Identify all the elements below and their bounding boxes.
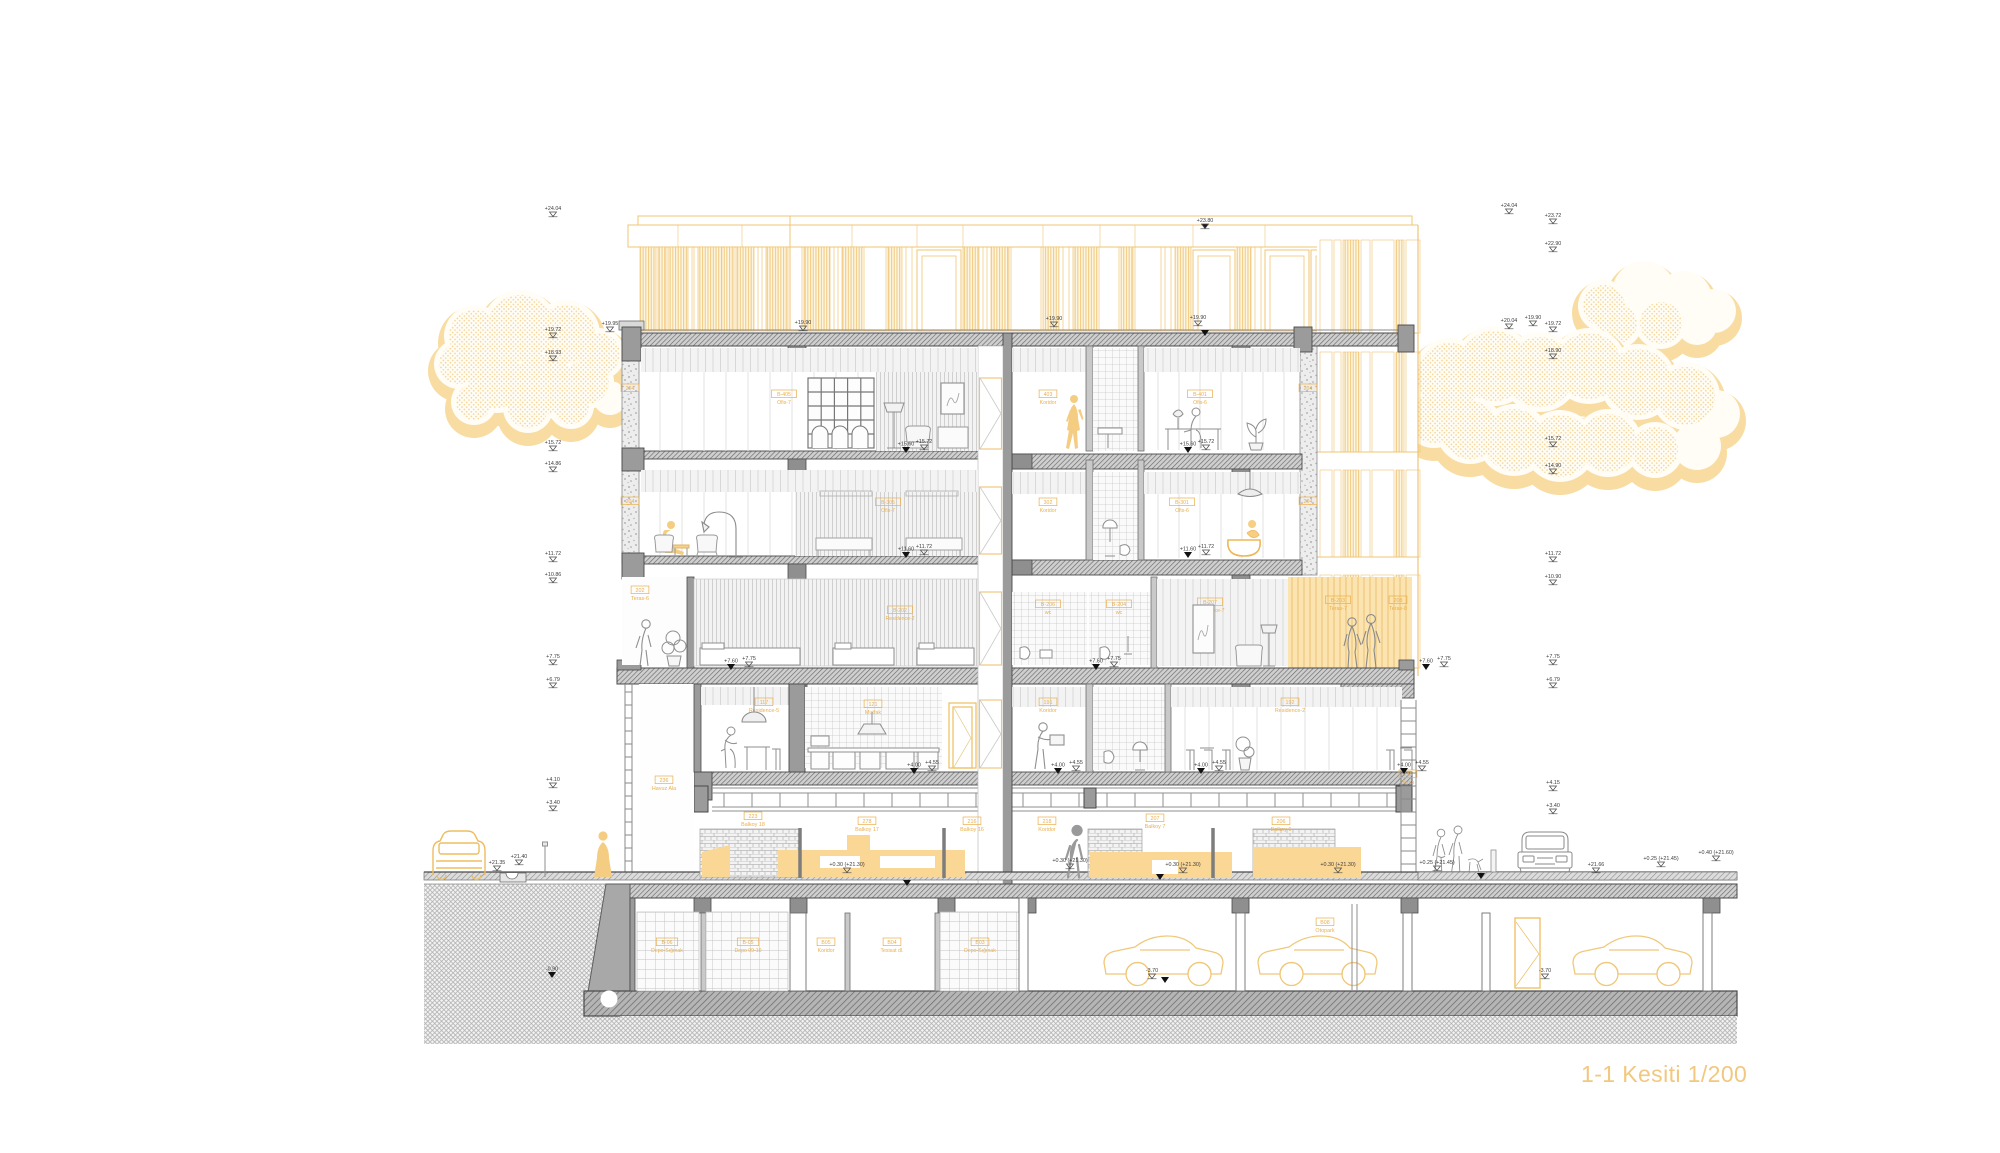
svg-text:207: 207 [1151,816,1160,822]
svg-text:+23.72: +23.72 [1545,213,1562,219]
svg-text:302: 302 [1044,500,1053,506]
svg-text:+24.04: +24.04 [545,206,562,212]
svg-text:wc: wc [1115,610,1123,616]
svg-text:+6.79: +6.79 [546,677,560,683]
svg-text:+7.60: +7.60 [1419,659,1433,665]
svg-text:Depo-Sığınak: Depo-Sığınak [651,948,683,954]
svg-text:Koridor: Koridor [818,948,835,954]
svg-text:Teras-8: Teras-8 [1389,606,1407,612]
svg-text:+15.60: +15.60 [1180,442,1197,448]
svg-text:+0.40 (+21.60): +0.40 (+21.60) [1698,850,1734,856]
svg-text:Residence-2: Residence-2 [885,616,914,622]
svg-text:Residence-2: Residence-2 [1275,708,1305,714]
svg-text:Balkoy 18: Balkoy 18 [741,822,765,828]
svg-text:+11.72: +11.72 [545,551,561,557]
svg-text:Depo-Sığınak: Depo-Sığınak [964,948,996,954]
svg-text:+0.30 (+21.30): +0.30 (+21.30) [1052,858,1088,864]
svg-text:+19.90: +19.90 [1190,315,1207,321]
svg-text:+22.90: +22.90 [1545,241,1562,247]
svg-text:+0.30 (+21.30): +0.30 (+21.30) [829,862,865,868]
svg-text:B-202: B-202 [893,608,907,614]
svg-text:+23.80: +23.80 [1197,218,1214,224]
svg-text:+7.60: +7.60 [1089,659,1103,665]
svg-text:206: 206 [1277,819,1286,825]
svg-text:+19.90: +19.90 [1046,316,1063,322]
svg-text:Ofis-6: Ofis-6 [1175,508,1189,514]
svg-text:223: 223 [749,814,758,820]
svg-text:+4.55: +4.55 [1069,760,1083,766]
svg-text:+4.00: +4.00 [907,763,921,769]
svg-text:B-06: B-06 [662,940,673,946]
svg-text:+7.60: +7.60 [724,659,738,665]
svg-text:B-206: B-206 [1041,602,1055,608]
svg-text:204: 204 [626,386,635,392]
svg-text:216: 216 [968,819,977,825]
svg-text:+19.72: +19.72 [545,327,562,333]
svg-text:191: 191 [1044,700,1053,706]
svg-text:+11.72: +11.72 [916,544,932,550]
svg-text:Koridor: Koridor [1040,508,1057,514]
svg-text:+15.72: +15.72 [545,440,562,446]
svg-text:-3.70: -3.70 [1539,968,1551,974]
svg-text:+0.30 (+21.30): +0.30 (+21.30) [1320,862,1356,868]
svg-text:117: 117 [760,700,769,706]
svg-text:204: 204 [626,499,635,505]
svg-text:+15.72: +15.72 [1198,439,1215,445]
svg-text:wc: wc [1044,610,1052,616]
svg-text:+24.04: +24.04 [1501,203,1518,209]
svg-text:+19.90: +19.90 [1525,315,1542,321]
svg-text:+4.00: +4.00 [1194,763,1208,769]
svg-text:+7.75: +7.75 [742,656,756,662]
svg-text:Teras: Teras [1402,780,1415,786]
svg-text:+10.90: +10.90 [1545,574,1562,580]
svg-text:B-301: B-301 [1175,500,1189,506]
svg-text:+7.75: +7.75 [1107,656,1121,662]
svg-text:278: 278 [863,819,872,825]
svg-text:B-405: B-405 [777,392,791,398]
svg-text:+7.75: +7.75 [1546,654,1560,660]
svg-text:+15.72: +15.72 [1545,436,1562,442]
svg-text:+7.75: +7.75 [1437,656,1451,662]
svg-text:1-1 Kesiti 1/200: 1-1 Kesiti 1/200 [1581,1061,1747,1087]
svg-text:+0.25 (+21.45): +0.25 (+21.45) [1643,856,1679,862]
svg-text:+11.72: +11.72 [1545,551,1561,557]
svg-text:B04: B04 [887,940,896,946]
svg-text:192: 192 [1286,700,1295,706]
svg-text:+4.55: +4.55 [1415,760,1429,766]
svg-text:202: 202 [636,588,645,594]
svg-text:+4.00: +4.00 [1397,763,1411,769]
svg-text:+19.95: +19.95 [602,321,619,327]
svg-text:236: 236 [660,778,669,784]
svg-text:204: 204 [1304,386,1313,392]
svg-text:Balkoy 16: Balkoy 16 [960,827,984,833]
svg-text:+20.04: +20.04 [1501,318,1518,324]
svg-text:+19.72: +19.72 [1545,321,1562,327]
svg-text:+4.10: +4.10 [546,777,560,783]
svg-text:235: 235 [1404,772,1413,778]
svg-text:218: 218 [1043,819,1052,825]
svg-text:+0.30 (+21.30): +0.30 (+21.30) [1165,862,1201,868]
svg-text:B-05: B-05 [743,940,754,946]
svg-text:+4.55: +4.55 [925,760,939,766]
svg-text:+0.25 (+21.45): +0.25 (+21.45) [1419,860,1455,866]
svg-text:Ofis-6: Ofis-6 [1193,400,1207,406]
svg-text:+19.90: +19.90 [795,320,812,326]
svg-text:Depo 09-10: Depo 09-10 [734,948,761,954]
svg-text:+10.86: +10.86 [545,572,562,578]
svg-text:B-204: B-204 [1112,602,1126,608]
svg-text:+4.15: +4.15 [1546,780,1560,786]
svg-text:B08: B08 [1320,920,1330,926]
svg-text:403: 403 [1044,392,1053,398]
svg-text:+7.75: +7.75 [546,654,560,660]
svg-text:208: 208 [1394,598,1403,604]
svg-text:+11.60: +11.60 [1180,547,1196,553]
svg-text:Koridor: Koridor [1039,708,1057,714]
svg-text:-3.70: -3.70 [1146,968,1158,974]
svg-text:B03: B03 [975,940,984,946]
svg-text:Havuz Ala: Havuz Ala [652,786,676,792]
svg-text:+11.72: +11.72 [1198,544,1214,550]
svg-text:+15.72: +15.72 [916,439,933,445]
svg-text:+4.00: +4.00 [1051,763,1065,769]
svg-text:+21.66: +21.66 [1588,862,1605,868]
svg-text:Ofis-7: Ofis-7 [777,400,791,406]
svg-text:+21.35: +21.35 [489,860,506,866]
svg-text:+18.90: +18.90 [1545,348,1562,354]
svg-text:Mutfak: Mutfak [865,710,881,716]
svg-text:Tesisat dl.: Tesisat dl. [880,948,903,954]
svg-text:+4.55: +4.55 [1212,760,1226,766]
svg-text:+15.60: +15.60 [898,442,915,448]
svg-text:+11.60: +11.60 [898,547,914,553]
svg-text:Teras-6: Teras-6 [631,596,649,602]
svg-text:Balkoy 17: Balkoy 17 [855,827,879,833]
svg-text:Balkoy 7: Balkoy 7 [1145,824,1166,830]
svg-text:121: 121 [869,702,878,708]
svg-text:Otopark: Otopark [1315,928,1334,934]
svg-text:+18.93: +18.93 [545,350,562,356]
svg-text:+3.40: +3.40 [1546,803,1560,809]
svg-text:+14.90: +14.90 [1545,463,1562,469]
svg-text:B-203: B-203 [1331,598,1345,604]
svg-text:B05: B05 [821,940,830,946]
svg-text:Balkoy 6: Balkoy 6 [1271,827,1292,833]
svg-text:Teras-7: Teras-7 [1329,606,1347,612]
svg-text:-0.90: -0.90 [546,967,558,973]
svg-text:+14.86: +14.86 [545,461,562,467]
svg-text:B-401: B-401 [1193,392,1207,398]
svg-text:204: 204 [1304,499,1313,505]
svg-text:+6.79: +6.79 [1546,677,1560,683]
svg-text:B-305: B-305 [881,500,895,506]
svg-text:Koridor: Koridor [1038,827,1056,833]
svg-text:+3.40: +3.40 [546,800,560,806]
svg-text:Ofis-7: Ofis-7 [881,508,895,514]
svg-text:Koridor: Koridor [1040,400,1057,406]
svg-text:+21.40: +21.40 [511,854,528,860]
